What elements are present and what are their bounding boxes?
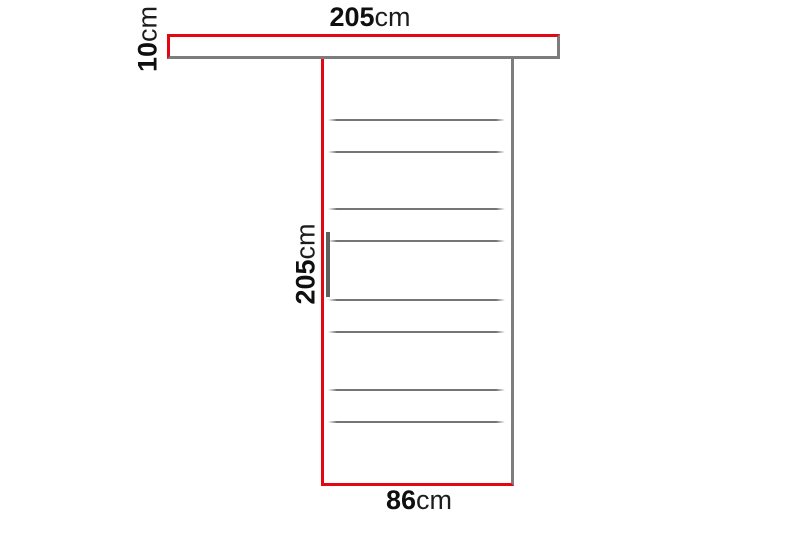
door-slat-line bbox=[328, 119, 505, 121]
door-slat-line bbox=[328, 151, 505, 153]
door-width-unit: cm bbox=[416, 485, 452, 515]
door-slat-line bbox=[328, 421, 505, 423]
door-height-value: 205 bbox=[291, 259, 321, 304]
rail-track bbox=[167, 34, 560, 59]
rail-width-value: 205 bbox=[329, 2, 374, 32]
door-panel bbox=[321, 59, 514, 486]
rail-height-value: 10 bbox=[133, 42, 163, 72]
rail-width-unit: cm bbox=[375, 2, 411, 32]
diagram-canvas: 205cm 10cm 205cm 86cm bbox=[0, 0, 800, 533]
door-width-label: 86cm bbox=[386, 487, 452, 514]
rail-height-label: 10cm bbox=[135, 6, 162, 72]
rail-width-label: 205cm bbox=[329, 4, 410, 31]
door-slat-line bbox=[328, 240, 505, 242]
door-slat-line bbox=[328, 331, 505, 333]
door-slat-line bbox=[328, 208, 505, 210]
rail-height-unit: cm bbox=[133, 6, 163, 42]
door-height-label: 205cm bbox=[293, 223, 320, 304]
door-height-unit: cm bbox=[291, 223, 321, 259]
door-slat-line bbox=[328, 389, 505, 391]
door-handle bbox=[326, 232, 330, 297]
door-slat-line bbox=[328, 299, 505, 301]
door-width-value: 86 bbox=[386, 485, 416, 515]
